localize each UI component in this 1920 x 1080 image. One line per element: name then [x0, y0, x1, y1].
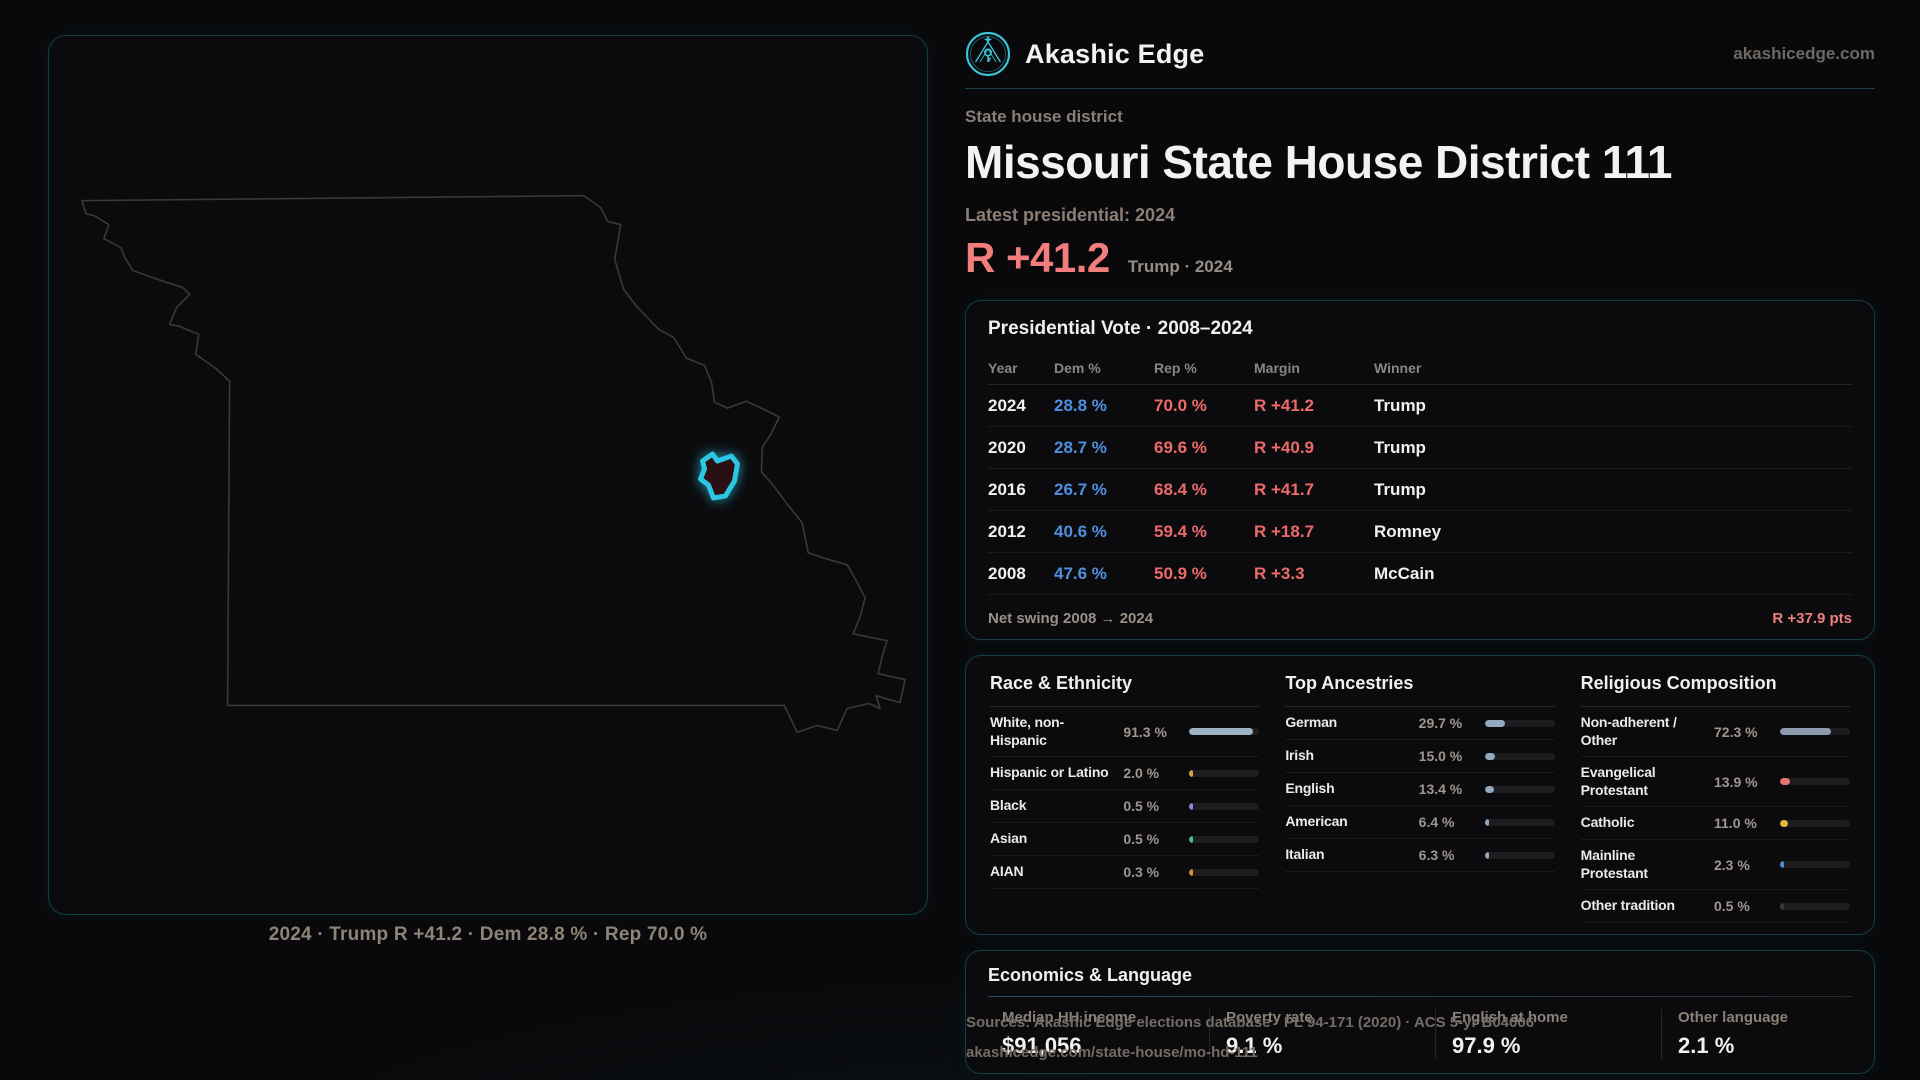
cell-rep-pct: 59.4 % — [1154, 522, 1254, 542]
stat-bar — [1780, 728, 1850, 735]
cell-margin: R +41.7 — [1254, 480, 1374, 500]
cell-dem-pct: 47.6 % — [1054, 564, 1154, 584]
brand-domain-link[interactable]: akashicedge.com — [1733, 44, 1875, 64]
stat-row: Asian 0.5 % — [990, 823, 1259, 856]
stat-row: German 29.7 % — [1285, 707, 1554, 740]
economics-stats-row: Median HH income $91,056 Poverty rate 9.… — [988, 1009, 1852, 1059]
stat-row: AIAN 0.3 % — [990, 856, 1259, 889]
headline-margin-stat: R +41.2 — [965, 234, 1110, 282]
demographics-card: Race & Ethnicity White, non-Hispanic 91.… — [965, 655, 1875, 935]
district-shape[interactable] — [701, 454, 738, 498]
col-header-year: Year — [988, 360, 1054, 376]
econ-stat-value: 2.1 % — [1678, 1033, 1852, 1059]
cell-year: 2016 — [988, 480, 1054, 500]
stat-bar — [1780, 903, 1850, 910]
missouri-state-outline — [82, 196, 905, 733]
stat-row: Evangelical Protestant 13.9 % — [1581, 757, 1850, 807]
stat-row: White, non-Hispanic 91.3 % — [990, 707, 1259, 757]
cell-rep-pct: 69.6 % — [1154, 438, 1254, 458]
state-map-panel — [48, 35, 928, 915]
stat-label: Asian — [990, 830, 1113, 848]
table-row: 2024 28.8 % 70.0 % R +41.2 Trump — [988, 385, 1852, 427]
stat-label: Evangelical Protestant — [1581, 764, 1704, 799]
cell-winner: Trump — [1374, 438, 1852, 458]
stat-bar — [1485, 753, 1555, 760]
stat-label: Catholic — [1581, 814, 1704, 832]
stat-value: 6.4 % — [1419, 814, 1475, 830]
stat-bar — [1485, 786, 1555, 793]
presidential-vote-card: Presidential Vote · 2008–2024 Year Dem %… — [965, 300, 1875, 640]
dashboard-root: { "theme": { "accent_teal": "#2cc5e2", "… — [0, 0, 1920, 1080]
ancestries-panel: Top Ancestries German 29.7 % Irish 15.0 … — [1285, 656, 1554, 872]
page-eyebrow: State house district — [965, 107, 1875, 127]
col-header-margin: Margin — [1254, 360, 1374, 376]
stat-row: Irish 15.0 % — [1285, 740, 1554, 773]
econ-stat-other-language: Other language 2.1 % — [1661, 1009, 1852, 1059]
stat-bar — [1189, 728, 1259, 735]
stat-bar — [1189, 770, 1259, 777]
stat-row: English 13.4 % — [1285, 773, 1554, 806]
brand-row: Akashic Edge akashicedge.com — [965, 28, 1875, 80]
stat-label: AIAN — [990, 863, 1113, 881]
stat-bar — [1485, 720, 1555, 727]
stat-row: Black 0.5 % — [990, 790, 1259, 823]
econ-stat-english-at-home: English at home 97.9 % — [1435, 1009, 1661, 1059]
headline-row: R +41.2 Trump · 2024 — [965, 234, 1875, 282]
econ-stat-value: 97.9 % — [1452, 1033, 1661, 1059]
stat-bar — [1189, 803, 1259, 810]
stat-label: American — [1285, 813, 1408, 831]
stat-label: Irish — [1285, 747, 1408, 765]
table-row: 2008 47.6 % 50.9 % R +3.3 McCain — [988, 553, 1852, 595]
right-column-header: Akashic Edge akashicedge.com State house… — [965, 28, 1875, 282]
stat-value: 0.3 % — [1123, 864, 1179, 880]
stat-value: 0.5 % — [1123, 798, 1179, 814]
cell-margin: R +3.3 — [1254, 564, 1374, 584]
map-caption: 2024 · Trump R +41.2 · Dem 28.8 % · Rep … — [48, 924, 928, 946]
cell-winner: Romney — [1374, 522, 1852, 542]
cell-rep-pct: 50.9 % — [1154, 564, 1254, 584]
cell-winner: Trump — [1374, 480, 1852, 500]
stat-label: German — [1285, 714, 1408, 732]
stat-value: 2.0 % — [1123, 765, 1179, 781]
stat-label: Non-adherent / Other — [1581, 714, 1704, 749]
stat-label: Black — [990, 797, 1113, 815]
econ-stat-label: Poverty rate — [1226, 1009, 1435, 1026]
stat-row: Catholic 11.0 % — [1581, 807, 1850, 840]
stat-row: Hispanic or Latino 2.0 % — [990, 757, 1259, 790]
econ-stat-poverty-rate: Poverty rate 9.1 % — [1209, 1009, 1435, 1059]
stat-value: 15.0 % — [1419, 748, 1475, 764]
net-swing-value: R +37.9 pts — [1772, 610, 1852, 627]
economics-title: Economics & Language — [988, 951, 1852, 997]
cell-winner: McCain — [1374, 564, 1852, 584]
stat-row: American 6.4 % — [1285, 806, 1554, 839]
religion-panel: Religious Composition Non-adherent / Oth… — [1581, 656, 1850, 923]
stat-row: Non-adherent / Other 72.3 % — [1581, 707, 1850, 757]
stat-row: Mainline Protestant 2.3 % — [1581, 840, 1850, 890]
stat-value: 72.3 % — [1714, 724, 1770, 740]
stat-label: Italian — [1285, 846, 1408, 864]
stat-value: 91.3 % — [1123, 724, 1179, 740]
cell-year: 2008 — [988, 564, 1054, 584]
stat-value: 13.4 % — [1419, 781, 1475, 797]
ancestries-panel-title: Top Ancestries — [1285, 656, 1554, 707]
stat-value: 0.5 % — [1714, 898, 1770, 914]
economics-language-card: Economics & Language Median HH income $9… — [965, 950, 1875, 1074]
stat-bar — [1485, 819, 1555, 826]
cell-margin: R +18.7 — [1254, 522, 1374, 542]
cell-rep-pct: 70.0 % — [1154, 396, 1254, 416]
stat-value: 29.7 % — [1419, 715, 1475, 731]
akashic-edge-emblem-icon — [965, 31, 1011, 77]
econ-stat-label: Median HH income — [1002, 1009, 1209, 1026]
cell-rep-pct: 68.4 % — [1154, 480, 1254, 500]
stat-bar — [1780, 778, 1850, 785]
stat-row: Italian 6.3 % — [1285, 839, 1554, 872]
cell-dem-pct: 28.8 % — [1054, 396, 1154, 416]
stat-value: 13.9 % — [1714, 774, 1770, 790]
net-swing-label: Net swing 2008 → 2024 — [988, 610, 1153, 627]
race-ethnicity-panel: Race & Ethnicity White, non-Hispanic 91.… — [990, 656, 1259, 889]
table-row: 2012 40.6 % 59.4 % R +18.7 Romney — [988, 511, 1852, 553]
stat-bar — [1780, 820, 1850, 827]
col-header-rep: Rep % — [1154, 360, 1254, 376]
stat-label: English — [1285, 780, 1408, 798]
net-swing-row: Net swing 2008 → 2024 R +37.9 pts — [988, 595, 1852, 641]
econ-stat-value: 9.1 % — [1226, 1033, 1435, 1059]
stat-bar — [1189, 869, 1259, 876]
stat-row: Other tradition 0.5 % — [1581, 890, 1850, 923]
cell-dem-pct: 26.7 % — [1054, 480, 1154, 500]
cell-dem-pct: 40.6 % — [1054, 522, 1154, 542]
page-title: Missouri State House District 111 — [965, 135, 1875, 189]
stat-value: 6.3 % — [1419, 847, 1475, 863]
stat-label: White, non-Hispanic — [990, 714, 1113, 749]
header-divider — [965, 88, 1875, 89]
stat-bar — [1780, 861, 1850, 868]
econ-stat-label: English at home — [1452, 1009, 1661, 1026]
stat-value: 0.5 % — [1123, 831, 1179, 847]
table-row: 2020 28.7 % 69.6 % R +40.9 Trump — [988, 427, 1852, 469]
cell-dem-pct: 28.7 % — [1054, 438, 1154, 458]
econ-stat-median-income: Median HH income $91,056 — [988, 1009, 1209, 1059]
table-row: 2016 26.7 % 68.4 % R +41.7 Trump — [988, 469, 1852, 511]
cell-year: 2024 — [988, 396, 1054, 416]
missouri-map — [49, 36, 927, 914]
col-header-winner: Winner — [1374, 360, 1852, 376]
stat-value: 11.0 % — [1714, 815, 1770, 831]
cell-margin: R +41.2 — [1254, 396, 1374, 416]
stat-label: Mainline Protestant — [1581, 847, 1704, 882]
religion-panel-title: Religious Composition — [1581, 656, 1850, 707]
table-header-row: Year Dem % Rep % Margin Winner — [988, 352, 1852, 385]
cell-year: 2012 — [988, 522, 1054, 542]
presidential-vote-title: Presidential Vote · 2008–2024 — [988, 301, 1852, 352]
cell-year: 2020 — [988, 438, 1054, 458]
stat-bar — [1189, 836, 1259, 843]
cell-winner: Trump — [1374, 396, 1852, 416]
stat-bar — [1485, 852, 1555, 859]
headline-context: Trump · 2024 — [1128, 257, 1233, 277]
econ-stat-label: Other language — [1678, 1009, 1852, 1026]
econ-stat-value: $91,056 — [1002, 1033, 1209, 1059]
latest-presidential-label: Latest presidential: 2024 — [965, 205, 1875, 226]
cell-margin: R +40.9 — [1254, 438, 1374, 458]
col-header-dem: Dem % — [1054, 360, 1154, 376]
stat-label: Other tradition — [1581, 897, 1704, 915]
brand-name: Akashic Edge — [1025, 39, 1204, 70]
stat-label: Hispanic or Latino — [990, 764, 1113, 782]
stat-value: 2.3 % — [1714, 857, 1770, 873]
race-panel-title: Race & Ethnicity — [990, 656, 1259, 707]
